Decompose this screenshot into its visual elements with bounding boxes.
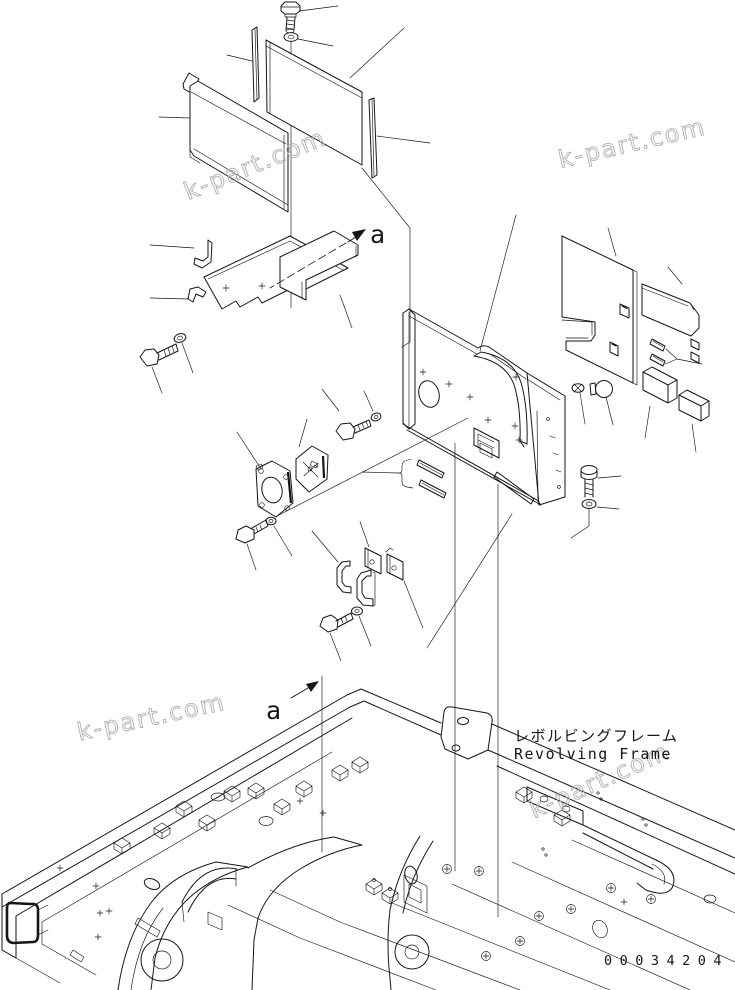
- mid-bolt: [322, 389, 371, 440]
- small-shield-cover: [296, 419, 328, 492]
- watermark-top-right: k-part.com: [556, 113, 709, 174]
- frame-title-en: Revolving Frame: [514, 745, 672, 763]
- hook-bracket-upper: [150, 240, 212, 268]
- right-lower-bolt: [581, 466, 621, 498]
- part-number: 00034204: [604, 953, 729, 969]
- watermarks: k-part.com k-part.com k-part.com k-part.…: [75, 113, 709, 825]
- low-bolt: [236, 520, 268, 570]
- sponge-block-2: [679, 390, 709, 452]
- parts-diagram-page: a: [0, 0, 735, 990]
- right-lower-washer: [571, 500, 619, 539]
- corner-plate-right: [642, 267, 699, 363]
- left-bolt: [140, 344, 178, 393]
- exploded-parts-drawing: a: [0, 0, 735, 990]
- frame-title: レボルビングフレーム Revolving Frame: [514, 727, 679, 763]
- sponge-seal-strips: [362, 459, 446, 498]
- hook-bracket-lower: [150, 287, 206, 302]
- strip-clips-right: [650, 339, 702, 366]
- oval-hole-cover: [237, 432, 293, 517]
- seal-strip-left: [227, 27, 259, 102]
- clamp-cluster: [312, 514, 512, 661]
- mid-washer: [364, 391, 382, 422]
- seal-strip-right: [369, 98, 430, 178]
- top-washer: [284, 33, 333, 46]
- main-side-panel: [403, 215, 565, 505]
- watermark-mid-left: k-part.com: [75, 688, 228, 747]
- notched-plate-right: [562, 228, 637, 385]
- right-washer-plug: [572, 381, 613, 426]
- low-washer: [266, 517, 292, 556]
- section-label-bottom: a: [266, 696, 281, 725]
- left-washer: [173, 332, 193, 373]
- frame-title-jp: レボルビングフレーム: [514, 727, 679, 745]
- section-label-top: a: [370, 220, 385, 249]
- sponge-block-1: [643, 367, 677, 438]
- top-bolt: [281, 2, 338, 33]
